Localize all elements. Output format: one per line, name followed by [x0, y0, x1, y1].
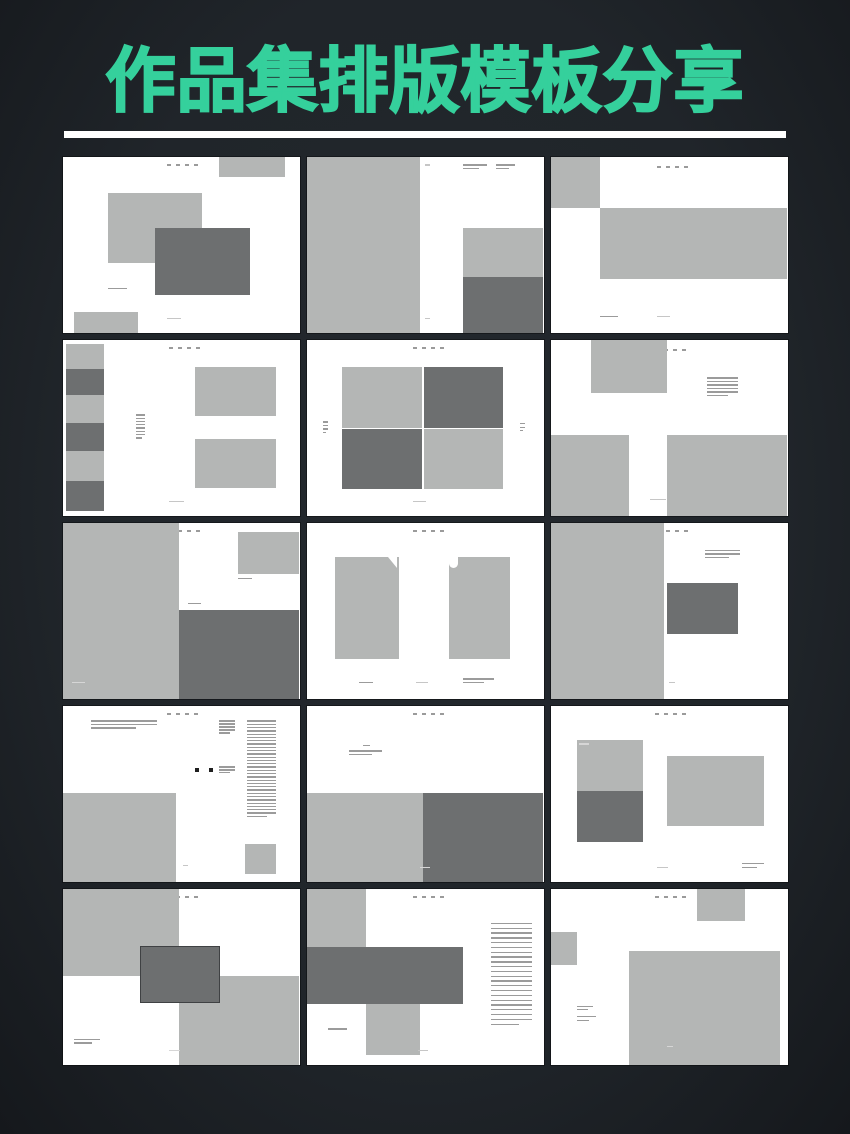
- watermark-artifact: [449, 557, 458, 568]
- image-placeholder-rect: [424, 367, 504, 428]
- page-header-marks: [413, 713, 444, 715]
- caption-text-lines: [219, 720, 236, 735]
- caption-text-lines: [491, 923, 531, 1029]
- image-placeholder-rect: [342, 367, 422, 428]
- image-placeholder-rect: [667, 756, 764, 826]
- image-placeholder-rect: [551, 435, 629, 516]
- image-placeholder-rect: [342, 429, 422, 489]
- image-placeholder-rect: [307, 793, 423, 883]
- caption-text-lines: [238, 578, 259, 581]
- caption-text-lines: [425, 164, 432, 167]
- template-grid: [63, 157, 788, 1065]
- watermark-artifact: [388, 557, 397, 568]
- image-placeholder-rect: [307, 947, 463, 1003]
- caption-text-lines: [463, 678, 494, 685]
- image-placeholder-rect: [66, 423, 104, 451]
- caption-text-lines: [520, 423, 525, 433]
- image-placeholder-rect: [551, 523, 665, 699]
- image-placeholder-rect: [63, 523, 179, 699]
- caption-text-lines: [577, 1006, 594, 1013]
- template-thumbnail-spread-11-split-bottom-half: [307, 706, 544, 882]
- caption-text-lines: [707, 377, 738, 398]
- image-placeholder-rect: [463, 228, 544, 277]
- template-thumbnail-spread-01-overlapping-images: [63, 157, 300, 333]
- page-header-marks: [655, 713, 686, 715]
- caption-text-lines: [323, 421, 328, 435]
- template-thumbnail-spread-15-corner-blocks-large-image: [551, 889, 788, 1065]
- caption-text-lines: [413, 501, 432, 504]
- image-placeholder-rect: [600, 208, 787, 278]
- caption-text-lines: [669, 682, 678, 685]
- caption-text-lines: [136, 414, 145, 440]
- image-placeholder-rect: [66, 395, 104, 423]
- image-placeholder-rect: [577, 740, 643, 791]
- caption-text-lines: [74, 1039, 100, 1046]
- template-thumbnail-spread-03-banner-image: [551, 157, 788, 333]
- image-placeholder-rect: [463, 277, 544, 333]
- template-thumbnail-spread-10-text-heavy-editorial: [63, 706, 300, 882]
- caption-text-lines: [91, 720, 157, 730]
- template-thumbnail-spread-06-three-blocks: [551, 340, 788, 516]
- page-header-marks: [167, 713, 198, 715]
- poster-background: 作品集排版模板分享: [0, 0, 850, 1134]
- page-header-marks: [655, 896, 686, 898]
- image-placeholder-rect: [66, 344, 104, 369]
- image-placeholder-rect: [307, 889, 366, 947]
- caption-text-lines: [169, 501, 190, 504]
- caption-text-lines: [183, 865, 190, 868]
- image-placeholder-rect: [551, 932, 577, 965]
- template-thumbnail-spread-04-filmstrip-left: [63, 340, 300, 516]
- image-placeholder-rect: [423, 793, 544, 883]
- page-header-marks: [657, 166, 688, 168]
- caption-text-lines: [650, 499, 674, 502]
- caption-text-lines: [363, 745, 372, 748]
- caption-text-lines: [72, 682, 91, 685]
- caption-text-lines: [600, 316, 626, 319]
- image-placeholder-rect: [591, 340, 667, 393]
- image-placeholder-rect: [63, 793, 177, 883]
- caption-text-lines: [416, 682, 435, 685]
- template-thumbnail-spread-14-band-with-index-list: [307, 889, 544, 1065]
- caption-text-lines: [328, 1028, 356, 1031]
- caption-text-lines: [579, 743, 593, 746]
- page-title: 作品集排版模板分享: [0, 0, 850, 120]
- image-placeholder-rect: [449, 557, 511, 659]
- caption-text-lines: [169, 1050, 186, 1053]
- template-thumbnail-spread-08-two-portrait-images: [307, 523, 544, 699]
- caption-text-lines: [108, 288, 136, 291]
- caption-text-lines: [742, 863, 763, 870]
- caption-text-lines: [167, 318, 188, 321]
- image-placeholder-rect: [307, 157, 421, 333]
- title-underline: [64, 131, 786, 138]
- caption-text-lines: [657, 867, 674, 870]
- page-header-marks: [413, 347, 444, 349]
- image-placeholder-rect: [179, 610, 300, 700]
- image-placeholder-rect: [219, 157, 285, 176]
- image-placeholder-rect: [366, 1004, 421, 1055]
- caption-text-lines: [219, 766, 236, 775]
- caption-text-lines: [657, 316, 676, 319]
- image-placeholder-rect: [195, 367, 276, 416]
- caption-text-lines: [188, 603, 207, 606]
- image-placeholder-rect: [667, 435, 788, 516]
- page-header-marks: [413, 530, 444, 532]
- page-header-marks: [413, 896, 444, 898]
- image-placeholder-rect: [577, 791, 643, 842]
- caption-text-lines: [667, 1046, 676, 1049]
- caption-text-lines: [425, 318, 432, 321]
- image-placeholder-rect: [335, 557, 399, 659]
- caption-text-lines: [463, 164, 487, 171]
- caption-text-lines: [705, 550, 741, 560]
- square-bullet: [209, 768, 213, 772]
- image-placeholder-rect: [551, 157, 601, 208]
- template-thumbnail-spread-12-stacked-and-single: [551, 706, 788, 882]
- image-placeholder-rect: [155, 228, 250, 295]
- template-thumbnail-spread-09-half-image-center-rect: [551, 523, 788, 699]
- image-placeholder-rect: [245, 844, 276, 874]
- image-placeholder-rect: [66, 451, 104, 481]
- image-placeholder-rect: [66, 481, 104, 511]
- template-thumbnail-spread-13-checker-center-overlay: [63, 889, 300, 1065]
- caption-text-lines: [420, 867, 434, 870]
- image-placeholder-rect: [424, 429, 504, 489]
- template-thumbnail-spread-07-half-image-dark-corner: [63, 523, 300, 699]
- template-thumbnail-spread-02-half-page-image: [307, 157, 544, 333]
- image-placeholder-rect: [629, 951, 781, 1065]
- image-placeholder-rect: [66, 369, 104, 395]
- caption-text-lines: [247, 720, 275, 818]
- page-header-marks: [169, 347, 200, 349]
- template-thumbnail-spread-05-checkerboard-grid: [307, 340, 544, 516]
- page-header-marks: [167, 164, 198, 166]
- caption-text-lines: [418, 1050, 432, 1053]
- image-placeholder-rect: [195, 439, 276, 488]
- image-placeholder-rect: [238, 532, 300, 574]
- square-bullet: [195, 768, 199, 772]
- image-placeholder-rect: [667, 583, 738, 634]
- image-placeholder-rect: [141, 947, 219, 1002]
- caption-text-lines: [577, 1016, 596, 1023]
- caption-text-lines: [359, 682, 380, 685]
- caption-text-lines: [349, 750, 382, 757]
- caption-text-lines: [496, 164, 515, 171]
- image-placeholder-rect: [697, 889, 744, 921]
- image-placeholder-rect: [74, 312, 138, 333]
